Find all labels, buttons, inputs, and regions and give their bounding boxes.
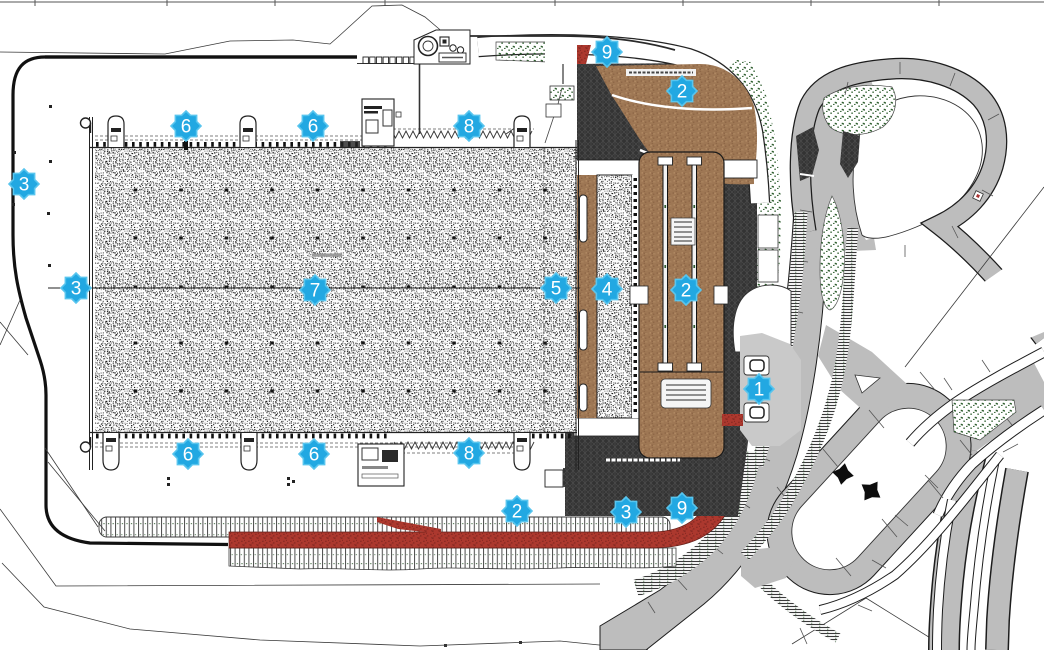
svg-text:2: 2 <box>512 502 523 523</box>
svg-text:4: 4 <box>602 280 613 301</box>
svg-text:5: 5 <box>551 279 562 300</box>
svg-text:8: 8 <box>464 117 475 138</box>
svg-text:6: 6 <box>309 445 320 466</box>
svg-text:6: 6 <box>308 117 319 138</box>
svg-text:2: 2 <box>681 281 692 302</box>
svg-text:3: 3 <box>71 279 82 300</box>
svg-text:3: 3 <box>19 175 30 196</box>
svg-text:6: 6 <box>183 445 194 466</box>
svg-text:6: 6 <box>181 117 192 138</box>
svg-text:7: 7 <box>310 281 321 302</box>
svg-text:9: 9 <box>602 43 613 64</box>
svg-text:2: 2 <box>677 82 688 103</box>
svg-text:1: 1 <box>754 380 765 401</box>
svg-text:3: 3 <box>621 503 632 524</box>
svg-text:8: 8 <box>464 444 475 465</box>
svg-text:9: 9 <box>677 499 688 520</box>
